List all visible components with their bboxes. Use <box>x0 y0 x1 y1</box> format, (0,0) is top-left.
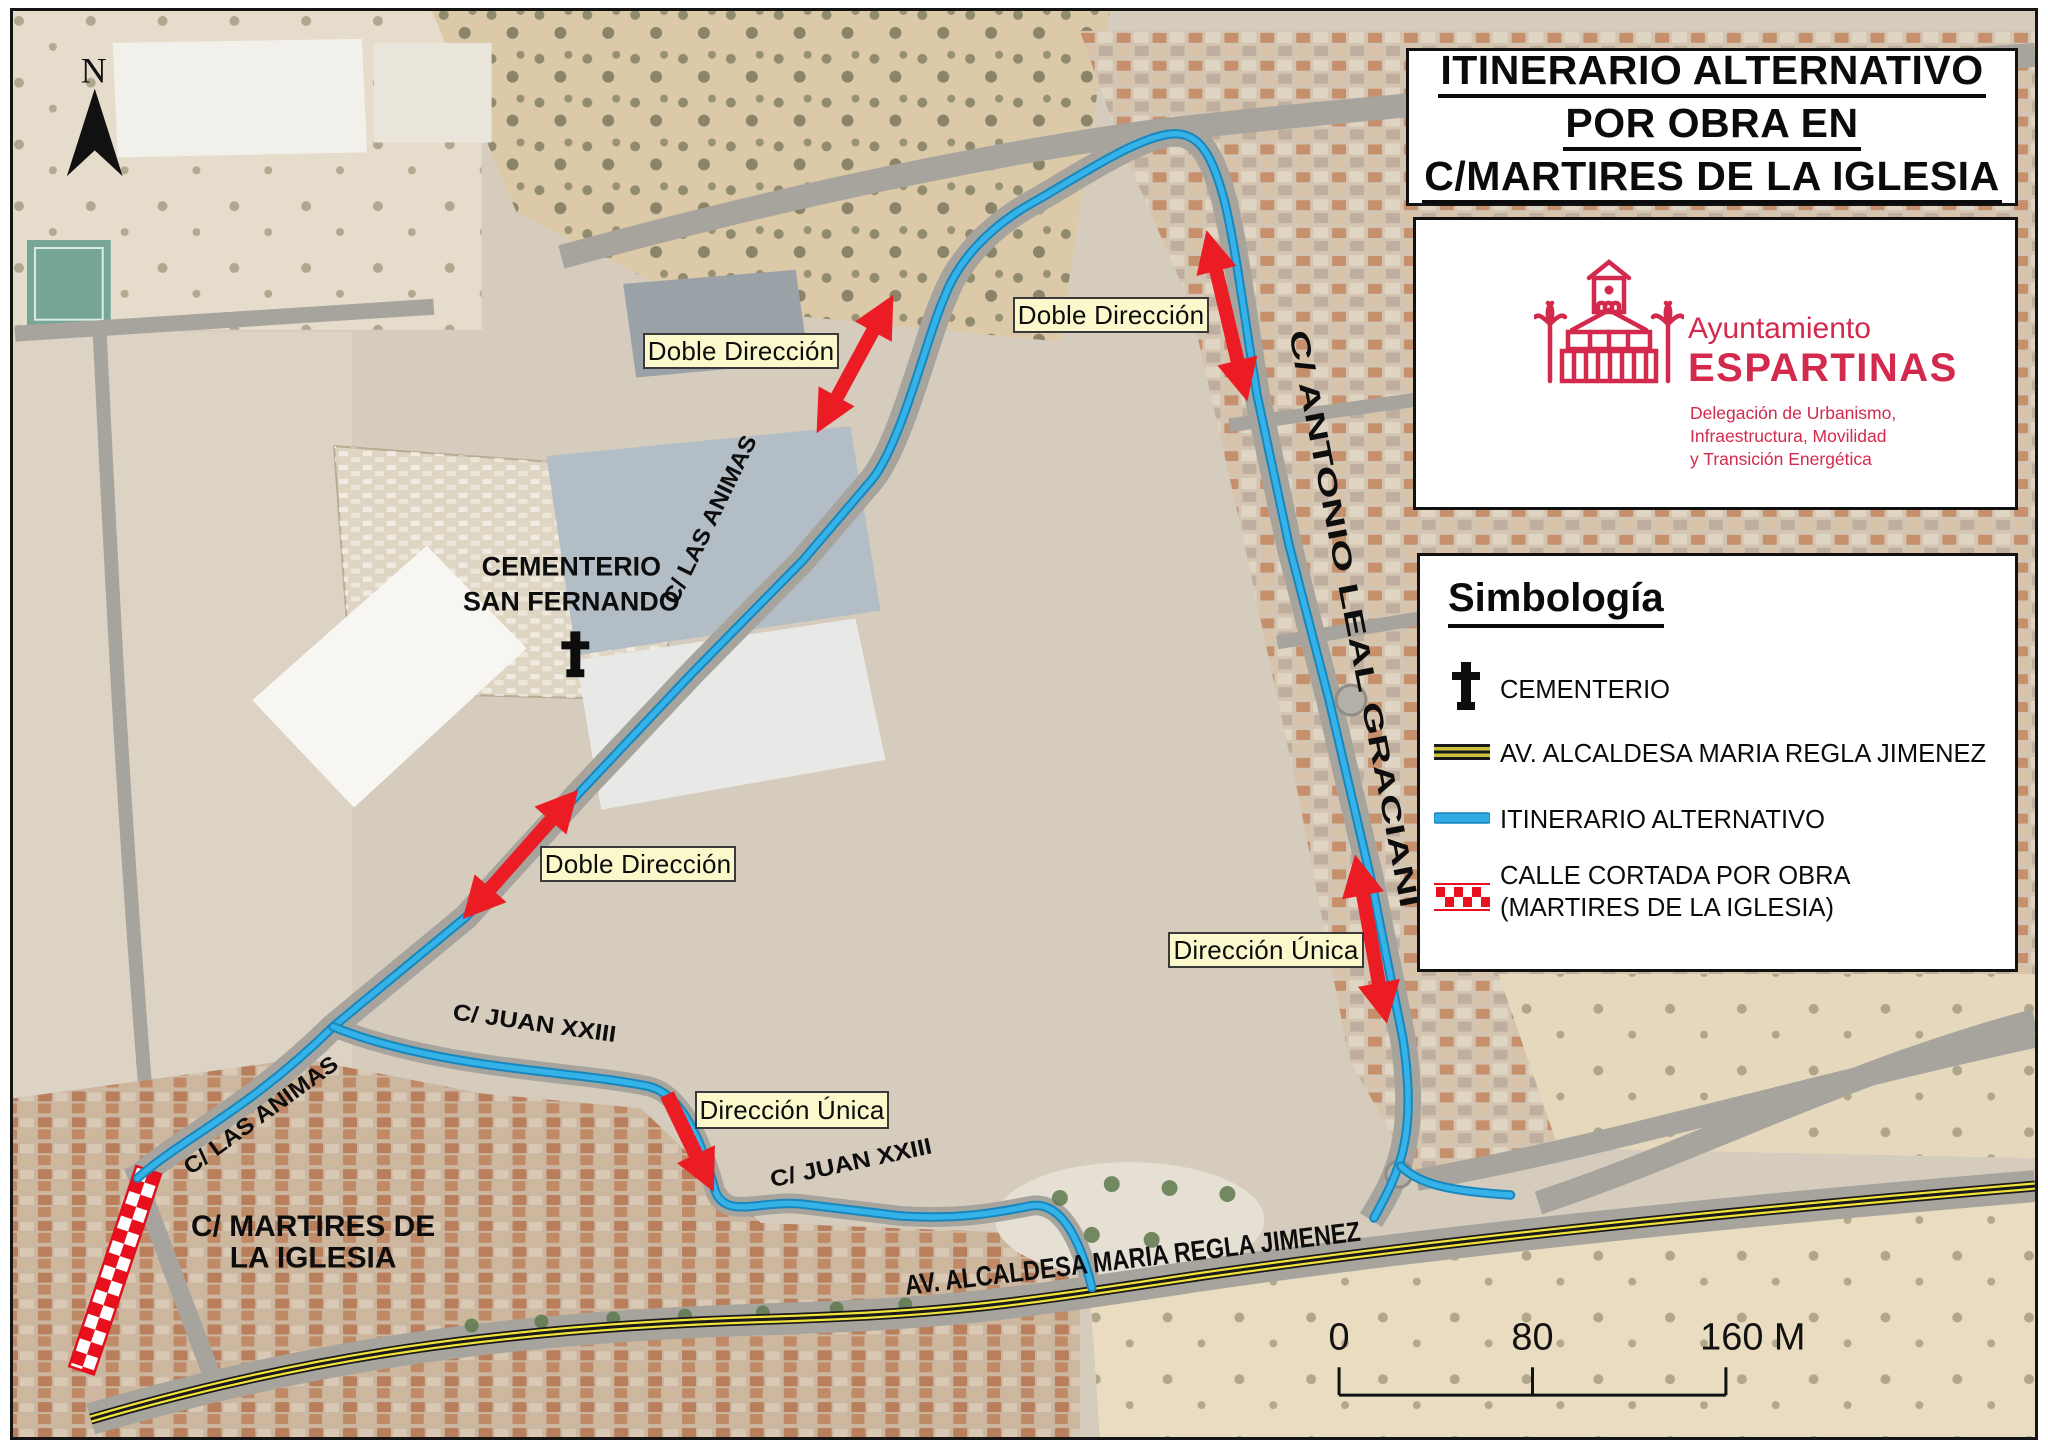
title-box: ITINERARIO ALTERNATIVO POR OBRA EN C/MAR… <box>1406 48 2018 206</box>
legend-closed-street-icon <box>1434 882 1490 912</box>
cemetery-name-line2: SAN FERNANDO <box>463 586 680 616</box>
logo-department-label: Delegación de Urbanismo, Infraestructura… <box>1690 402 1896 471</box>
logo-dept-line1: Delegación de Urbanismo, <box>1690 402 1896 425</box>
logo-dept-line3: y Transición Energética <box>1690 448 1896 471</box>
logo-municipality-label: ESPARTINAS <box>1688 346 1958 391</box>
tennis-courts <box>27 240 111 328</box>
scale-end: 160 M <box>1700 1316 1805 1358</box>
map-page: C/ LAS ANIMAS C/ LAS ANIMAS C/ JUAN XXII… <box>0 0 2048 1448</box>
legend-label-cortada-line1: CALLE CORTADA POR OBRA <box>1500 862 1851 891</box>
north-label: N <box>81 51 107 91</box>
scale-zero: 0 <box>1329 1316 1350 1358</box>
closed-street-name-line1: C/ MARTIRES DE <box>191 1210 435 1243</box>
legend-label-avenida: AV. ALCALDESA MARIA REGLA JIMENEZ <box>1500 740 1986 769</box>
legend-row-cementerio: CEMENTERIO <box>1420 660 2015 716</box>
title-line-3: C/MARTIRES DE LA IGLESIA <box>1422 156 2001 204</box>
legend-cemetery-cross-icon <box>1446 660 1486 716</box>
label-doble-direccion-3: Doble Dirección <box>1013 297 1209 333</box>
label-doble-direccion-4: Dirección Única <box>1168 932 1364 968</box>
scale-mid: 80 <box>1511 1316 1553 1358</box>
legend-row-avenida: AV. ALCALDESA MARIA REGLA JIMENEZ <box>1420 736 2015 776</box>
logo-org-label: Ayuntamiento <box>1688 312 1871 346</box>
label-direccion-unica: Dirección Única <box>695 1091 889 1129</box>
logo-box: Ayuntamiento ESPARTINAS Delegación de Ur… <box>1413 217 2018 510</box>
label-doble-direccion-2: Doble Dirección <box>540 846 736 882</box>
closed-street-name-line2: LA IGLESIA <box>230 1242 397 1275</box>
legend-label-cortada-line2: (MARTIRES DE LA IGLESIA) <box>1500 894 1834 923</box>
legend-row-cortada: CALLE CORTADA POR OBRA (MARTIRES DE LA I… <box>1420 862 2015 934</box>
logo-dept-line2: Infraestructura, Movilidad <box>1690 425 1896 448</box>
legend-avenue-line-icon <box>1434 744 1490 760</box>
legend-route-line-icon <box>1434 812 1490 824</box>
title-line-2: POR OBRA EN <box>1563 103 1860 151</box>
legend-box: Simbología CEMENTERIO AV. ALCALDESA M <box>1417 553 2018 972</box>
title-line-1: ITINERARIO ALTERNATIVO <box>1438 50 1985 98</box>
label-doble-direccion-1: Doble Dirección <box>643 333 839 369</box>
cemetery-name-line1: CEMENTERIO <box>482 552 661 582</box>
legend-label-cementerio: CEMENTERIO <box>1500 676 1670 705</box>
legend-row-itinerario: ITINERARIO ALTERNATIVO <box>1420 802 2015 842</box>
legend-label-itinerario: ITINERARIO ALTERNATIVO <box>1500 806 1825 835</box>
legend-title: Simbología <box>1448 576 1664 628</box>
espartinas-church-icon <box>1534 258 1684 393</box>
